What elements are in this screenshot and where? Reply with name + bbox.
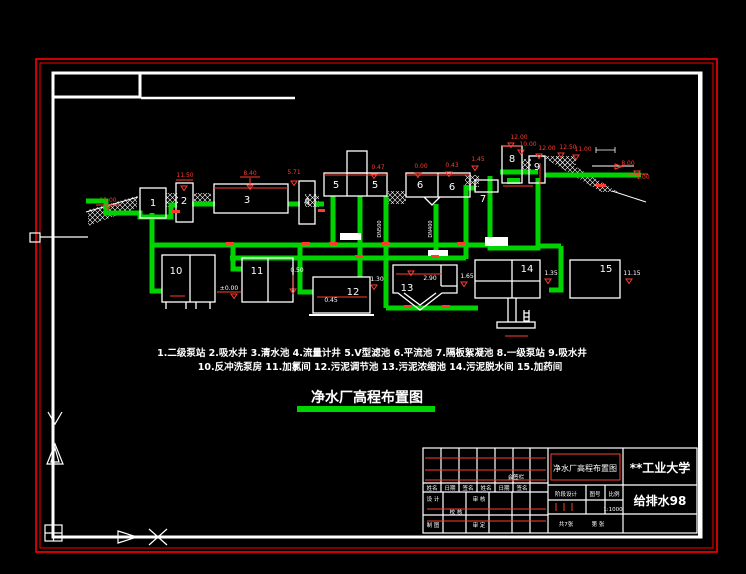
title-underline-bar <box>297 406 435 412</box>
structure-label-6a: 6 <box>417 180 423 191</box>
titleblock-class: 给排水98 <box>634 493 687 508</box>
cad-drawing-page: 1 2 3 4 5 5 6 6 7 8 9 10 11 12 13 14 15 … <box>0 0 746 574</box>
elevation-value: 11.00 <box>574 146 591 153</box>
titleblock-school: **工业大学 <box>630 460 691 475</box>
cad-canvas: 1 2 3 4 5 5 6 6 7 8 9 10 11 12 13 14 15 … <box>0 0 746 574</box>
titleblock-sheet-total: 共7张 <box>559 520 574 528</box>
structure-label-4: 4 <box>304 197 310 208</box>
structure-label-8: 8 <box>509 154 515 165</box>
elevation-value: 11.15 <box>623 270 640 277</box>
elevation-value: 1.65 <box>460 273 474 280</box>
elevation-value: 15.00 <box>99 197 116 204</box>
pipe-label: DN500 <box>377 220 383 237</box>
titleblock-countersign: 会签栏 <box>508 473 525 481</box>
sign-header-cell: 日期 <box>444 485 456 492</box>
structure-label-7: 7 <box>480 194 486 205</box>
titleblock-scale-label: 比例 <box>608 490 620 498</box>
titleblock-drawing-title: 净水厂高程布置图 <box>553 463 617 473</box>
structure-label-15: 15 <box>600 264 613 275</box>
structure-label-11: 11 <box>251 266 264 277</box>
elevation-value: 0.43 <box>445 162 459 169</box>
elevation-value: 2.90 <box>423 275 437 282</box>
benchmark-triangle <box>47 444 63 464</box>
elevation-value: 0.45 <box>324 297 338 304</box>
elevation-value: 12.00 <box>538 145 555 152</box>
structure-label-13: 13 <box>401 283 414 294</box>
main-title: 净水厂高程布置图 <box>297 389 435 412</box>
chevron-down-mark <box>48 412 62 424</box>
legend-line-2: 10.反冲洗泵房 11.加氯间 12.污泥调节池 13.污泥浓缩池 14.污泥脱… <box>198 361 563 373</box>
titleblock-sheet-label: 图号 <box>589 490 601 498</box>
elevation-value: 8.00 <box>621 160 635 167</box>
structure-label-3: 3 <box>244 195 250 206</box>
elevation-value: 0.50 <box>290 267 304 274</box>
sign-header-cell: 签名 <box>462 484 473 492</box>
elevation-value: 0.00 <box>414 163 428 170</box>
elevation-value: ±0.00 <box>220 285 239 292</box>
legend-line-1: 1.二级泵站 2.吸水井 3.清水池 4.流量计井 5.V型滤池 6.平流池 7… <box>157 347 587 359</box>
elevation-value: 1.45 <box>471 156 485 163</box>
titleblock-stage: 阶段设计 <box>555 490 578 498</box>
sign-header-cell: 姓名 <box>480 484 491 492</box>
structure-label-2: 2 <box>181 196 187 207</box>
pipe-label: DN400 <box>428 220 434 237</box>
red-border-frame <box>36 59 717 552</box>
field-approve: 审 定 <box>473 521 486 529</box>
structure-label-9: 9 <box>534 162 540 173</box>
elevation-value: 1.35 <box>544 270 558 277</box>
legend: 1.二级泵站 2.吸水井 3.清水池 4.流量计井 5.V型滤池 6.平流池 7… <box>157 347 587 373</box>
sign-header-cell: 签名 <box>516 484 527 492</box>
structure-label-5a: 5 <box>333 180 339 191</box>
sign-header-cell: 姓名 <box>426 484 437 492</box>
elevation-value: 12.00 <box>510 134 527 141</box>
elevation-value: 1.30 <box>370 276 384 283</box>
field-review: 审 核 <box>473 495 486 503</box>
elevation-value: 8.40 <box>243 170 257 177</box>
titleblock-sheet-number: 第 张 <box>592 520 605 528</box>
structure-label-6b: 6 <box>449 182 455 193</box>
field-check: 校 核 <box>450 508 463 516</box>
structure-label-14: 14 <box>521 264 534 275</box>
sign-header-cell: 日期 <box>498 485 510 492</box>
elevation-value: 10.00 <box>519 141 536 148</box>
pickbox-mark <box>30 233 40 242</box>
pipes-layer <box>86 172 641 308</box>
drawing-title-text: 净水厂高程布置图 <box>311 389 423 406</box>
field-design: 设 计 <box>427 495 440 503</box>
frame-marks <box>30 233 167 545</box>
elevation-value: 5.71 <box>287 169 301 176</box>
structure-label-1: 1 <box>150 198 156 209</box>
elevation-value: 0.47 <box>371 164 385 171</box>
structure-label-10: 10 <box>170 266 183 277</box>
structure-label-5b: 5 <box>372 180 378 191</box>
elevation-value: 11.50 <box>176 172 193 179</box>
titleblock-fields: 设 计 制 图 校 核 审 核 审 定 <box>427 495 486 529</box>
field-draft: 制 图 <box>427 521 440 529</box>
titleblock-scale-value: 1:1000 <box>603 507 623 513</box>
structure-label-12: 12 <box>347 287 360 298</box>
title-block: 净水厂高程布置图 **工业大学 给排水98 阶段设计 图号 比例 1:1000 … <box>423 448 697 533</box>
elevation-value: 1.00 <box>636 174 650 181</box>
